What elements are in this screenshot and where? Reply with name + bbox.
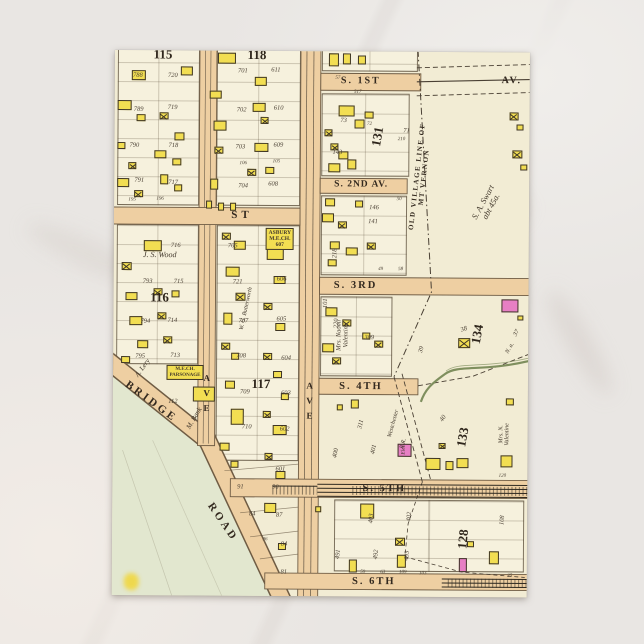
map-postcard: STS. 1STAV.S. 2ND AV.S. 3RDS. 4THS. 5THS… [112,50,530,598]
lot-number: 400 [332,448,341,459]
lot-number: 90 [272,485,279,492]
owner-label: M.E.CH. PARSONAGE [166,365,203,380]
lot-number: 37 [513,329,522,338]
lot-number: 718 [169,143,179,150]
street-label: AVE [304,381,314,426]
block-number: 117 [252,377,271,391]
block-number: 131 [369,126,386,148]
lot-number: 793 [143,279,153,286]
lot-number: 49 [378,267,383,272]
block-number: 133 [454,426,471,448]
lot-number: 84 [249,511,256,518]
lot-number: 708 [236,353,246,360]
owner-label: M. Bank [186,406,204,430]
marble-vein [539,285,622,402]
lot-number: 311 [357,419,366,430]
lot-number: 721 [233,279,243,286]
lot-number: 788 [133,73,143,80]
block-number: 134 [469,323,486,345]
lot-number: 608 [268,182,278,189]
lot-number: 609 [274,143,284,150]
lot-number: 40 [439,414,448,423]
lot-number: 493 [404,551,412,561]
lot-number: 101 [323,298,330,308]
lot-number: 791 [134,178,144,185]
lot-number: 703 [236,144,246,151]
lot-number: 604 [281,356,291,363]
lot-number: 73 [340,118,347,125]
lot-number: 84 [281,542,288,549]
block-number: 118 [248,50,267,62]
lot-number: 716 [171,243,181,250]
street-label: S. 2ND AV. [334,180,388,190]
owner-label: S. A. Swart abt 45a. [470,183,504,225]
owner-label: N. a. [505,342,516,355]
lot-number: 59 [360,570,365,575]
lot-number: 720 [168,73,178,80]
owner-label: Elec [402,445,408,455]
lot-number: 87 [276,513,283,520]
lot-number: 220 [334,318,341,328]
street-label: ST [231,210,253,222]
lot-number: 146 [369,205,379,212]
owner-label: J. S. Wood [143,251,177,260]
lot-number: 715 [174,279,184,286]
lot-number: 789 [134,107,144,114]
lot-number: 309 [364,335,374,342]
street-label: AV. [502,76,522,87]
owner-label: ASBURY M.E.CH. 607 [266,228,295,250]
lot-number: 105 [273,159,281,164]
lot-number: 603 [281,391,291,398]
street-label: OLD VILLAGE LINE OF MT VERNON [408,122,435,231]
lot-number: 606 [277,277,287,284]
lot-number: 38 [460,326,468,335]
lot-number: 106 [240,161,248,166]
lot-number: 702 [237,107,247,114]
owner-label: Mrs. N. Valentine [498,423,511,446]
lot-number: 50 [397,197,402,202]
lot-number: 492 [373,549,381,559]
lot-number: 81 [281,570,288,577]
lot-number: 143 [332,150,342,157]
owner-label: 112 [168,399,177,406]
lot-number: 517 [354,90,362,95]
street-label: ROAD [205,501,240,544]
lot-number: 704 [238,183,248,190]
block-number: 115 [154,50,173,61]
street-label: S. 3RD [334,280,378,291]
lot-number: 401 [370,444,379,455]
owner-label: A. Lery [134,358,152,379]
lot-number: 72 [367,122,372,127]
street-label: S. 6TH [352,576,396,587]
lot-number: 710 [242,424,252,431]
lot-number: 602 [280,427,290,434]
lot-number: 709 [240,389,250,396]
lot-number: 71 [403,128,410,135]
lot-number: 491 [335,549,343,559]
lot-number: 713 [170,353,180,360]
street-label: S. 1ST [341,76,381,87]
lot-number: 717 [168,180,178,187]
labels-layer: STS. 1STAV.S. 2ND AV.S. 3RDS. 4THS. 5THS… [112,50,530,598]
lot-number: 108 [499,515,507,525]
lot-number: 25 [507,574,512,579]
lot-number: 218 [332,248,339,258]
lot-number: 196 [156,197,164,202]
lot-number: 719 [168,105,178,112]
lot-number: 195 [128,197,136,202]
lot-number: 610 [274,106,284,113]
lot-number: 58 [398,267,403,272]
street-label: S. 5TH [363,483,407,494]
lot-number: 96 [262,537,267,542]
lot-number: 605 [276,317,286,324]
lot-number: 210 [398,137,406,142]
lot-number: 120 [499,474,507,479]
lot-number: 601 [276,467,286,474]
owner-label: Westchester [387,409,401,438]
lot-number: 790 [130,143,140,150]
block-number: 116 [150,290,169,304]
street-label: S. 4TH [339,381,383,392]
lot-number: 707 [238,318,248,325]
lot-number: 794 [140,319,150,326]
lot-number: 701 [238,68,248,75]
lot-number: 611 [271,68,280,75]
lot-number: 63 [380,570,385,575]
lot-number: 141 [368,219,378,226]
block-number: 128 [455,529,470,550]
lot-number: 705 [228,243,238,250]
lot-number: 91 [237,484,244,491]
lot-number: 109 [399,570,407,575]
lot-number: 57 [335,76,340,81]
yellow-smudge [124,573,139,590]
lot-number: 39 [418,346,426,354]
lot-number: 714 [167,318,177,325]
lot-number: 402 [406,512,414,522]
lot-number: 103 [419,571,427,576]
lot-number: 795 [135,354,145,361]
lot-number: 403 [368,513,376,523]
